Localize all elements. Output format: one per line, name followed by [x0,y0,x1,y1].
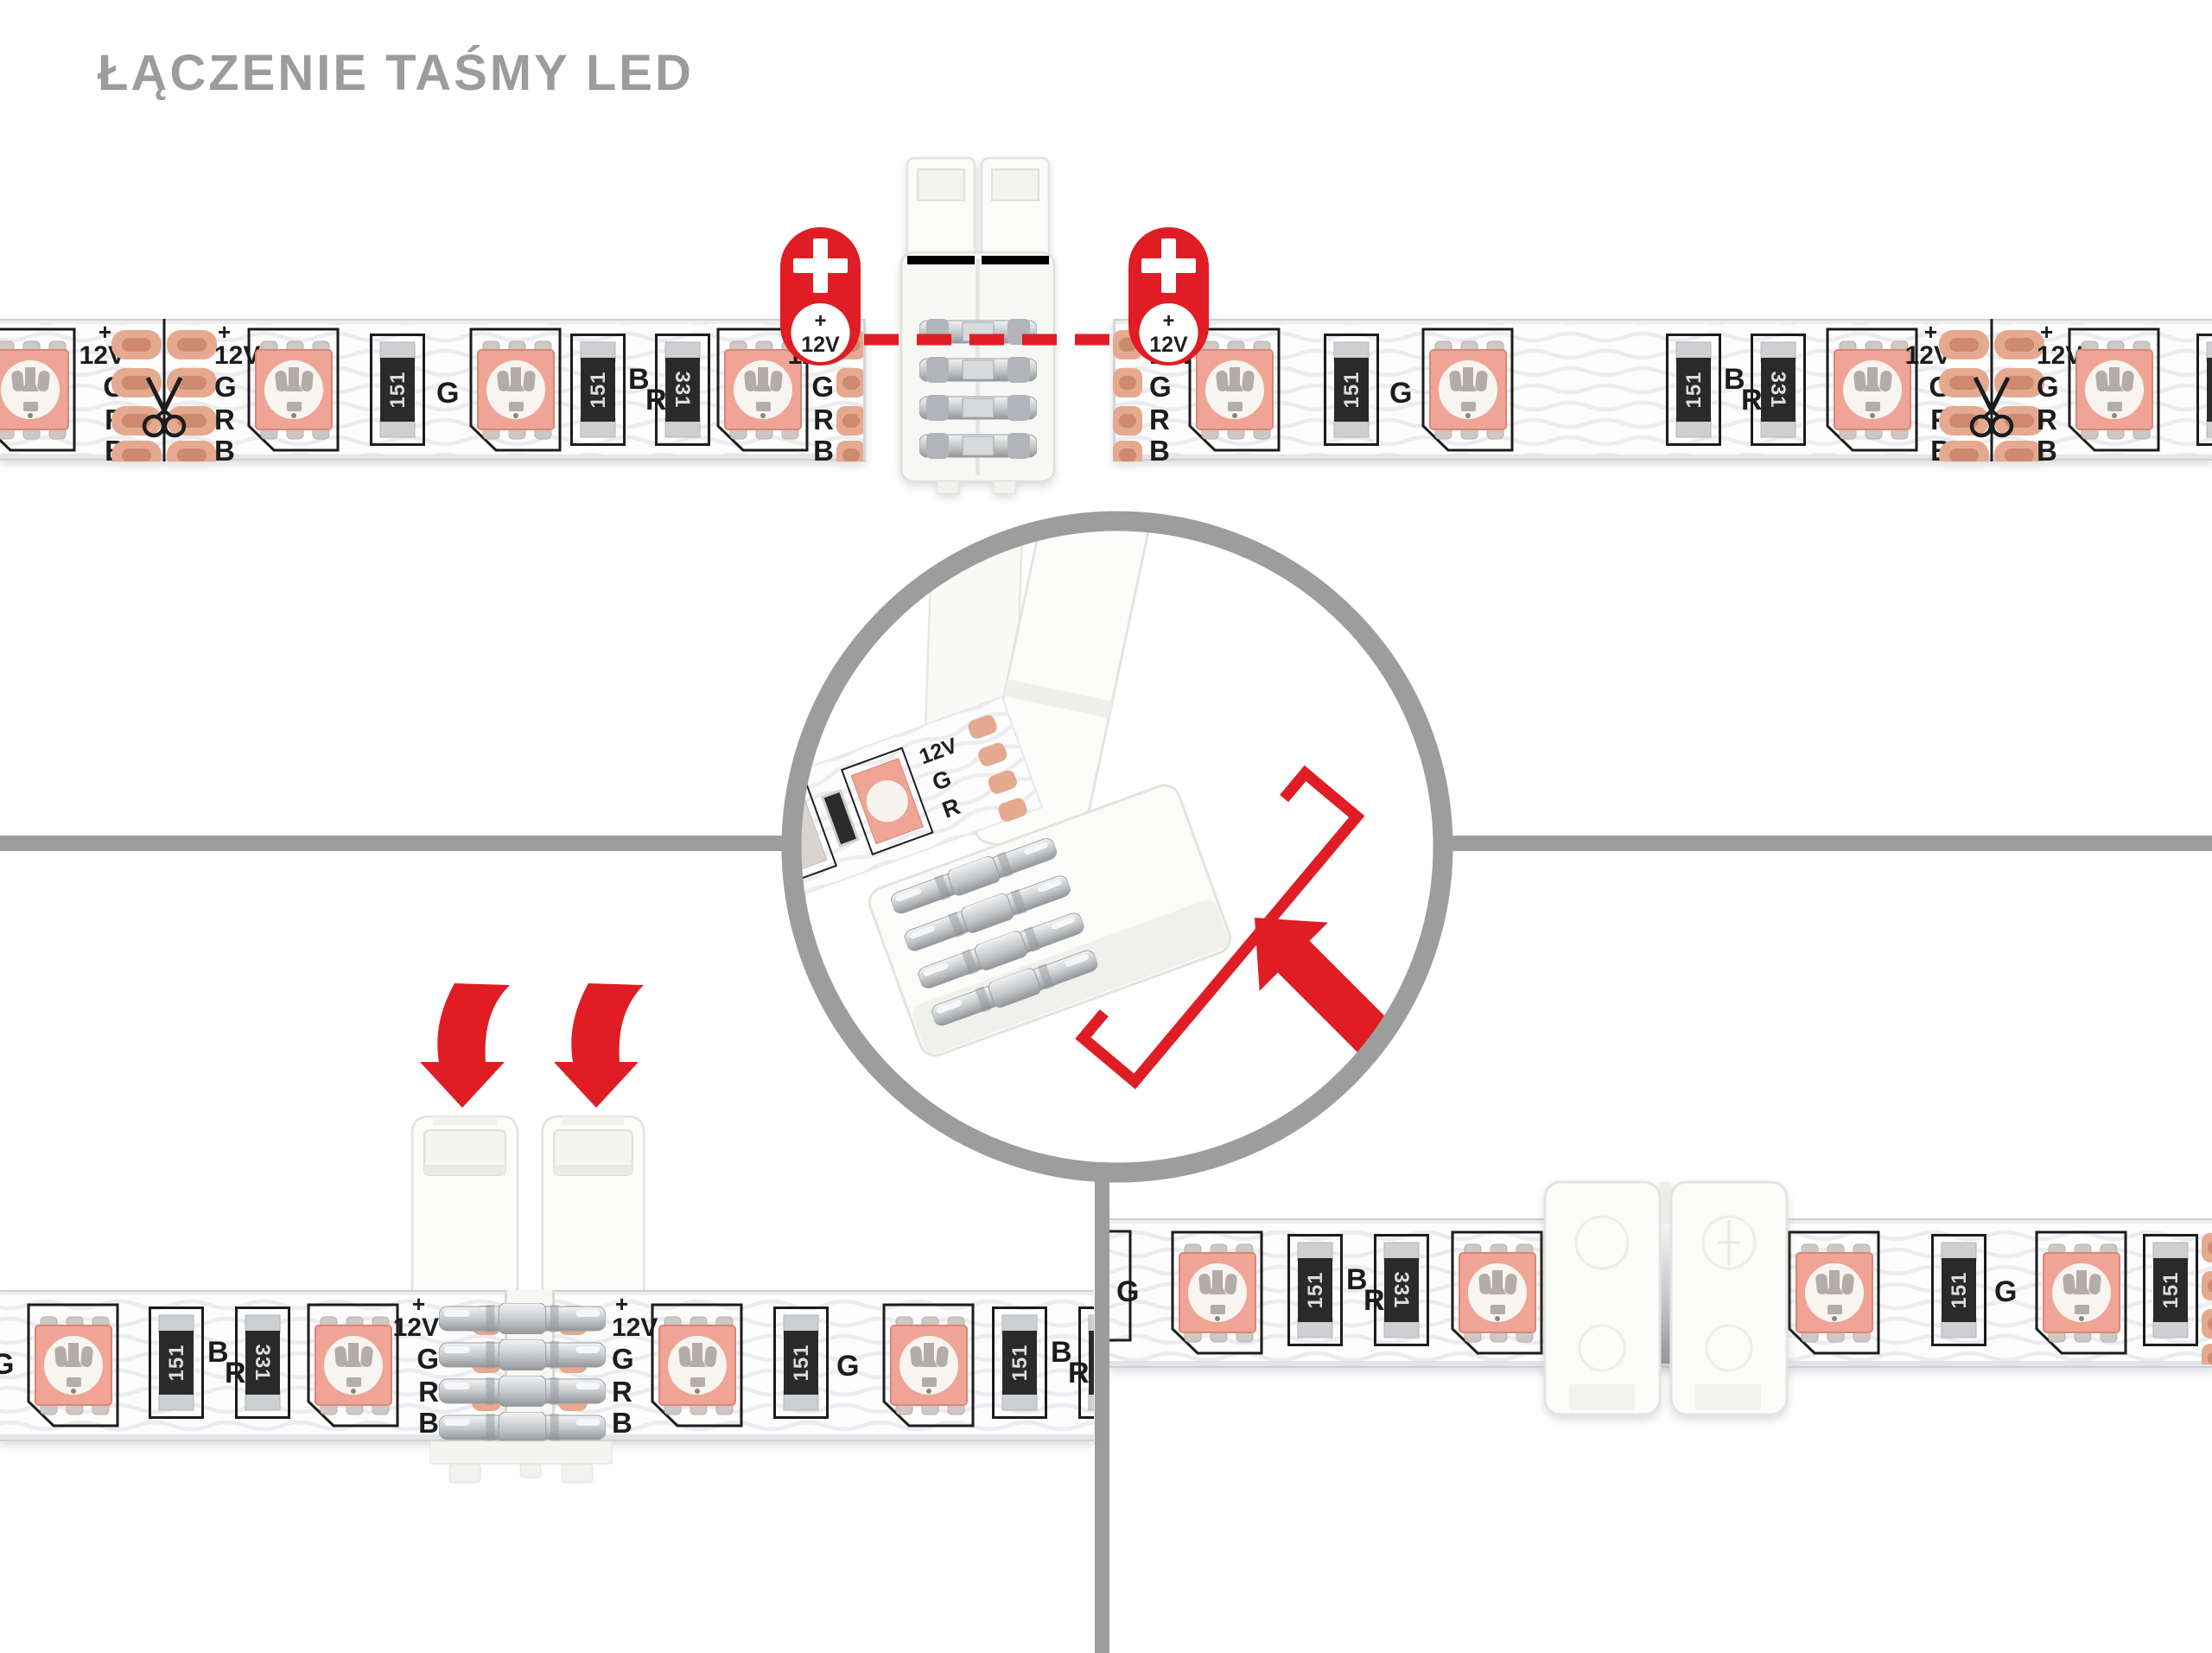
label-g: G [1994,1275,2017,1308]
label-g: G [1116,1275,1139,1308]
plus-marker-icon [1128,227,1209,366]
label-g: G [0,1348,14,1381]
plus-marker-icon [780,227,861,366]
led-module [29,1305,118,1426]
strip-connector-open-top [901,158,1054,493]
led-strip-top-right: G B R [1113,319,2212,470]
label-g: G [436,377,459,410]
metal-clip [439,1339,606,1370]
connector-lid-tab [412,1116,518,1294]
led-module [1190,329,1279,450]
connector-lid-tab [543,1116,645,1294]
press-down-arrow-icon [554,983,644,1108]
divider-line-right [1452,836,2212,851]
led-module [1423,329,1512,450]
label-g: G [1389,377,1412,410]
led-module [1452,1232,1541,1353]
cut-point [1939,319,2044,470]
page-title: ŁĄCZENIE TAŚMY LED [98,45,694,101]
zoom-detail-circle: 12V G R [730,452,1443,1173]
led-module [1827,329,1916,450]
metal-clip [439,1376,606,1407]
led-module [652,1305,741,1426]
led-module [884,1305,973,1426]
press-down-arrow-icon [420,983,510,1108]
led-module [2037,1232,2126,1353]
connector-bottom-teeth [430,1441,612,1483]
divider-line-left [0,836,783,851]
cut-point [111,319,217,470]
strip-connector-closed [1545,1182,1787,1415]
strip-connector-open-side [412,1116,644,1294]
led-module [2069,329,2158,450]
led-strip-bottom-left: G B R G B R [0,1290,1133,1446]
metal-clip [439,1303,606,1334]
illustration-canvas: 151 331 [0,0,2212,1653]
led-module [1173,1232,1262,1353]
led-module [1789,1232,1878,1353]
led-module [308,1305,397,1426]
led-module [471,329,560,450]
led-strip-top-left: G B R [0,319,866,470]
led-module [0,329,74,450]
divider-line-vertical [1095,1168,1109,1653]
instruction-sheet: 151 331 [0,0,2212,1653]
metal-clip [439,1412,606,1443]
led-module [249,329,338,450]
label-g: G [836,1350,859,1383]
